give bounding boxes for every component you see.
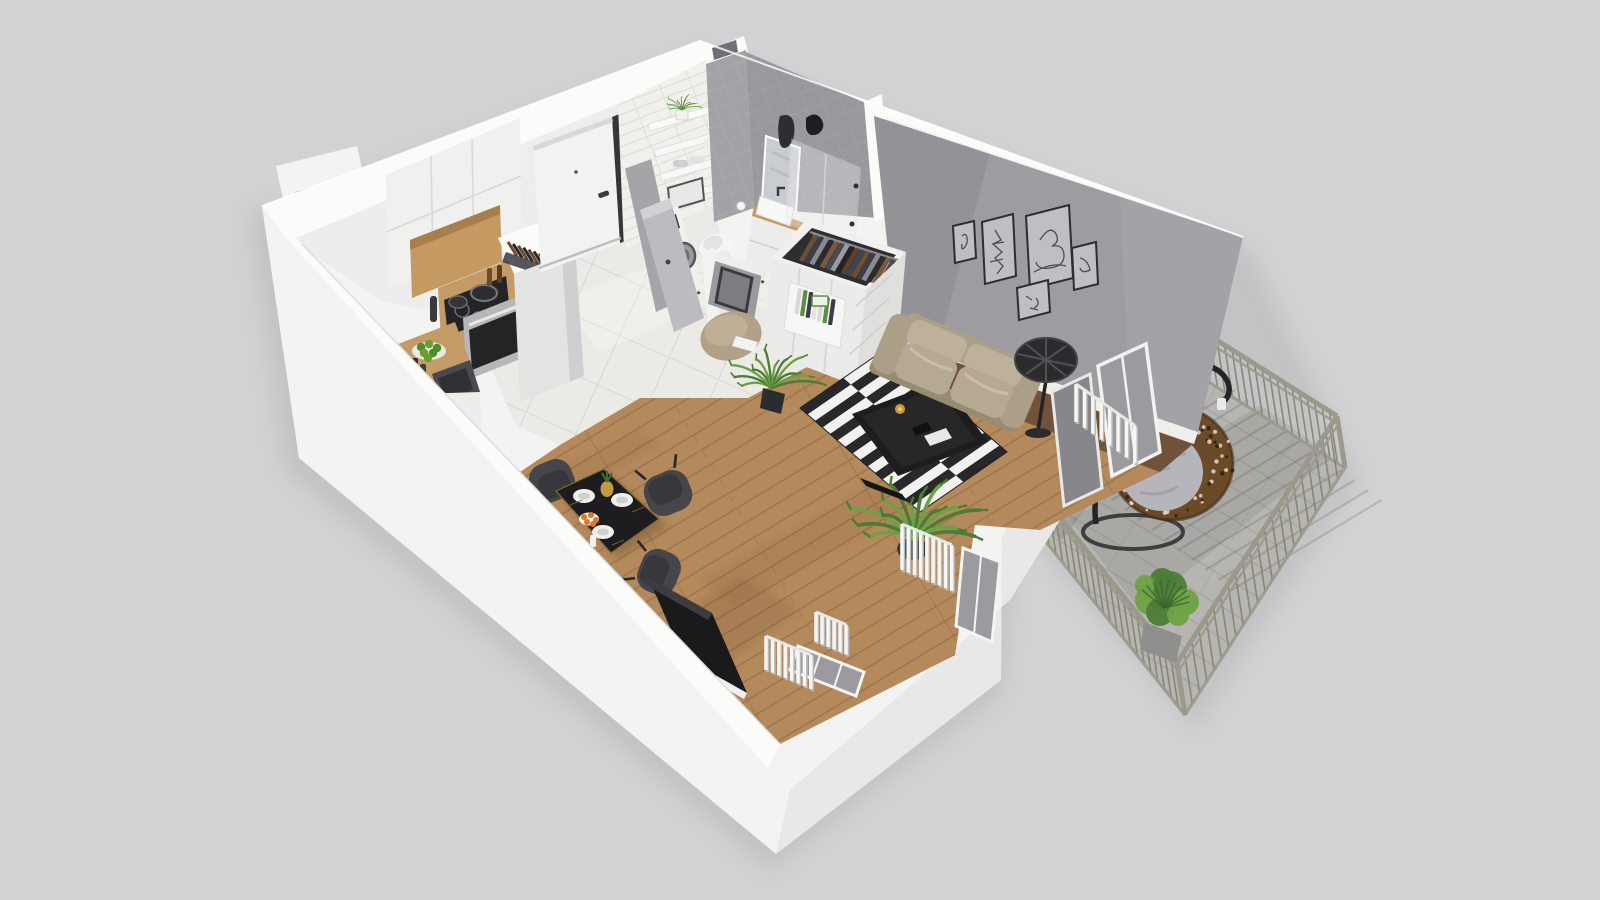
cooking-pot xyxy=(471,285,497,301)
towel-roll-2 xyxy=(689,156,704,163)
peninsula-front xyxy=(514,256,570,402)
egg-chair-hook xyxy=(1217,398,1226,410)
toilet-paper xyxy=(737,202,746,211)
oil-bottle xyxy=(430,296,437,322)
floorplan-svg xyxy=(0,0,1600,900)
pan xyxy=(449,296,467,308)
door-peephole xyxy=(574,170,578,174)
pineapple xyxy=(601,481,614,497)
shelf-plant-pot xyxy=(676,110,688,120)
pepper-grinder xyxy=(487,268,492,286)
apartment-3d-floorplan xyxy=(0,0,1600,900)
salt-grinder xyxy=(497,265,502,283)
bathroom-door-handle xyxy=(666,260,671,265)
towel-roll-1 xyxy=(673,160,688,167)
